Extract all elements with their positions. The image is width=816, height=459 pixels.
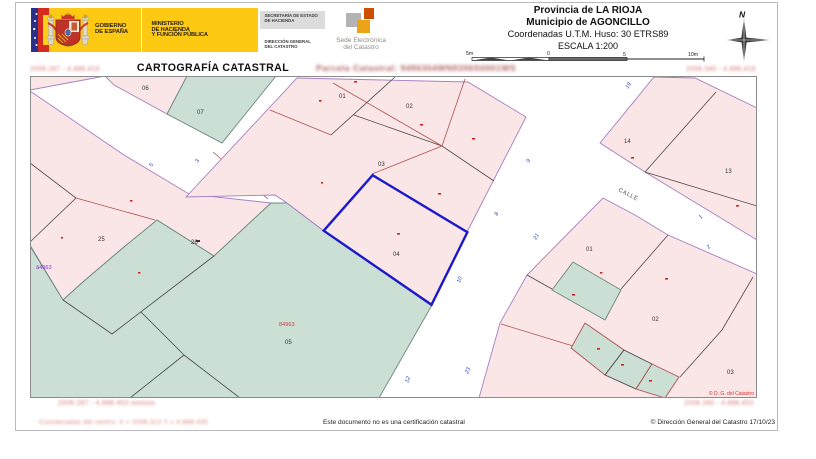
svg-text:5: 5 — [623, 52, 626, 58]
svg-text:â4963: â4963 — [36, 265, 52, 271]
svg-text:5m: 5m — [466, 51, 473, 57]
svg-text:25: 25 — [98, 237, 105, 243]
svg-text:84963: 84963 — [279, 322, 295, 328]
svg-text:10m: 10m — [688, 52, 698, 58]
svg-text:02: 02 — [652, 317, 659, 323]
svg-text:N: N — [739, 10, 746, 20]
svg-text:03: 03 — [727, 370, 734, 376]
svg-text:0: 0 — [547, 51, 550, 57]
svg-text:07: 07 — [197, 110, 204, 116]
svg-text:© D. G. del Catastro: © D. G. del Catastro — [709, 390, 754, 397]
svg-text:05: 05 — [285, 340, 292, 346]
svg-text:04: 04 — [393, 252, 400, 258]
svg-text:06: 06 — [142, 86, 149, 92]
svg-text:01: 01 — [586, 247, 593, 253]
svg-text:14: 14 — [624, 139, 631, 145]
svg-text:13: 13 — [725, 169, 732, 175]
svg-text:01: 01 — [339, 94, 346, 100]
svg-text:03: 03 — [378, 162, 385, 168]
svg-text:02: 02 — [406, 104, 413, 110]
